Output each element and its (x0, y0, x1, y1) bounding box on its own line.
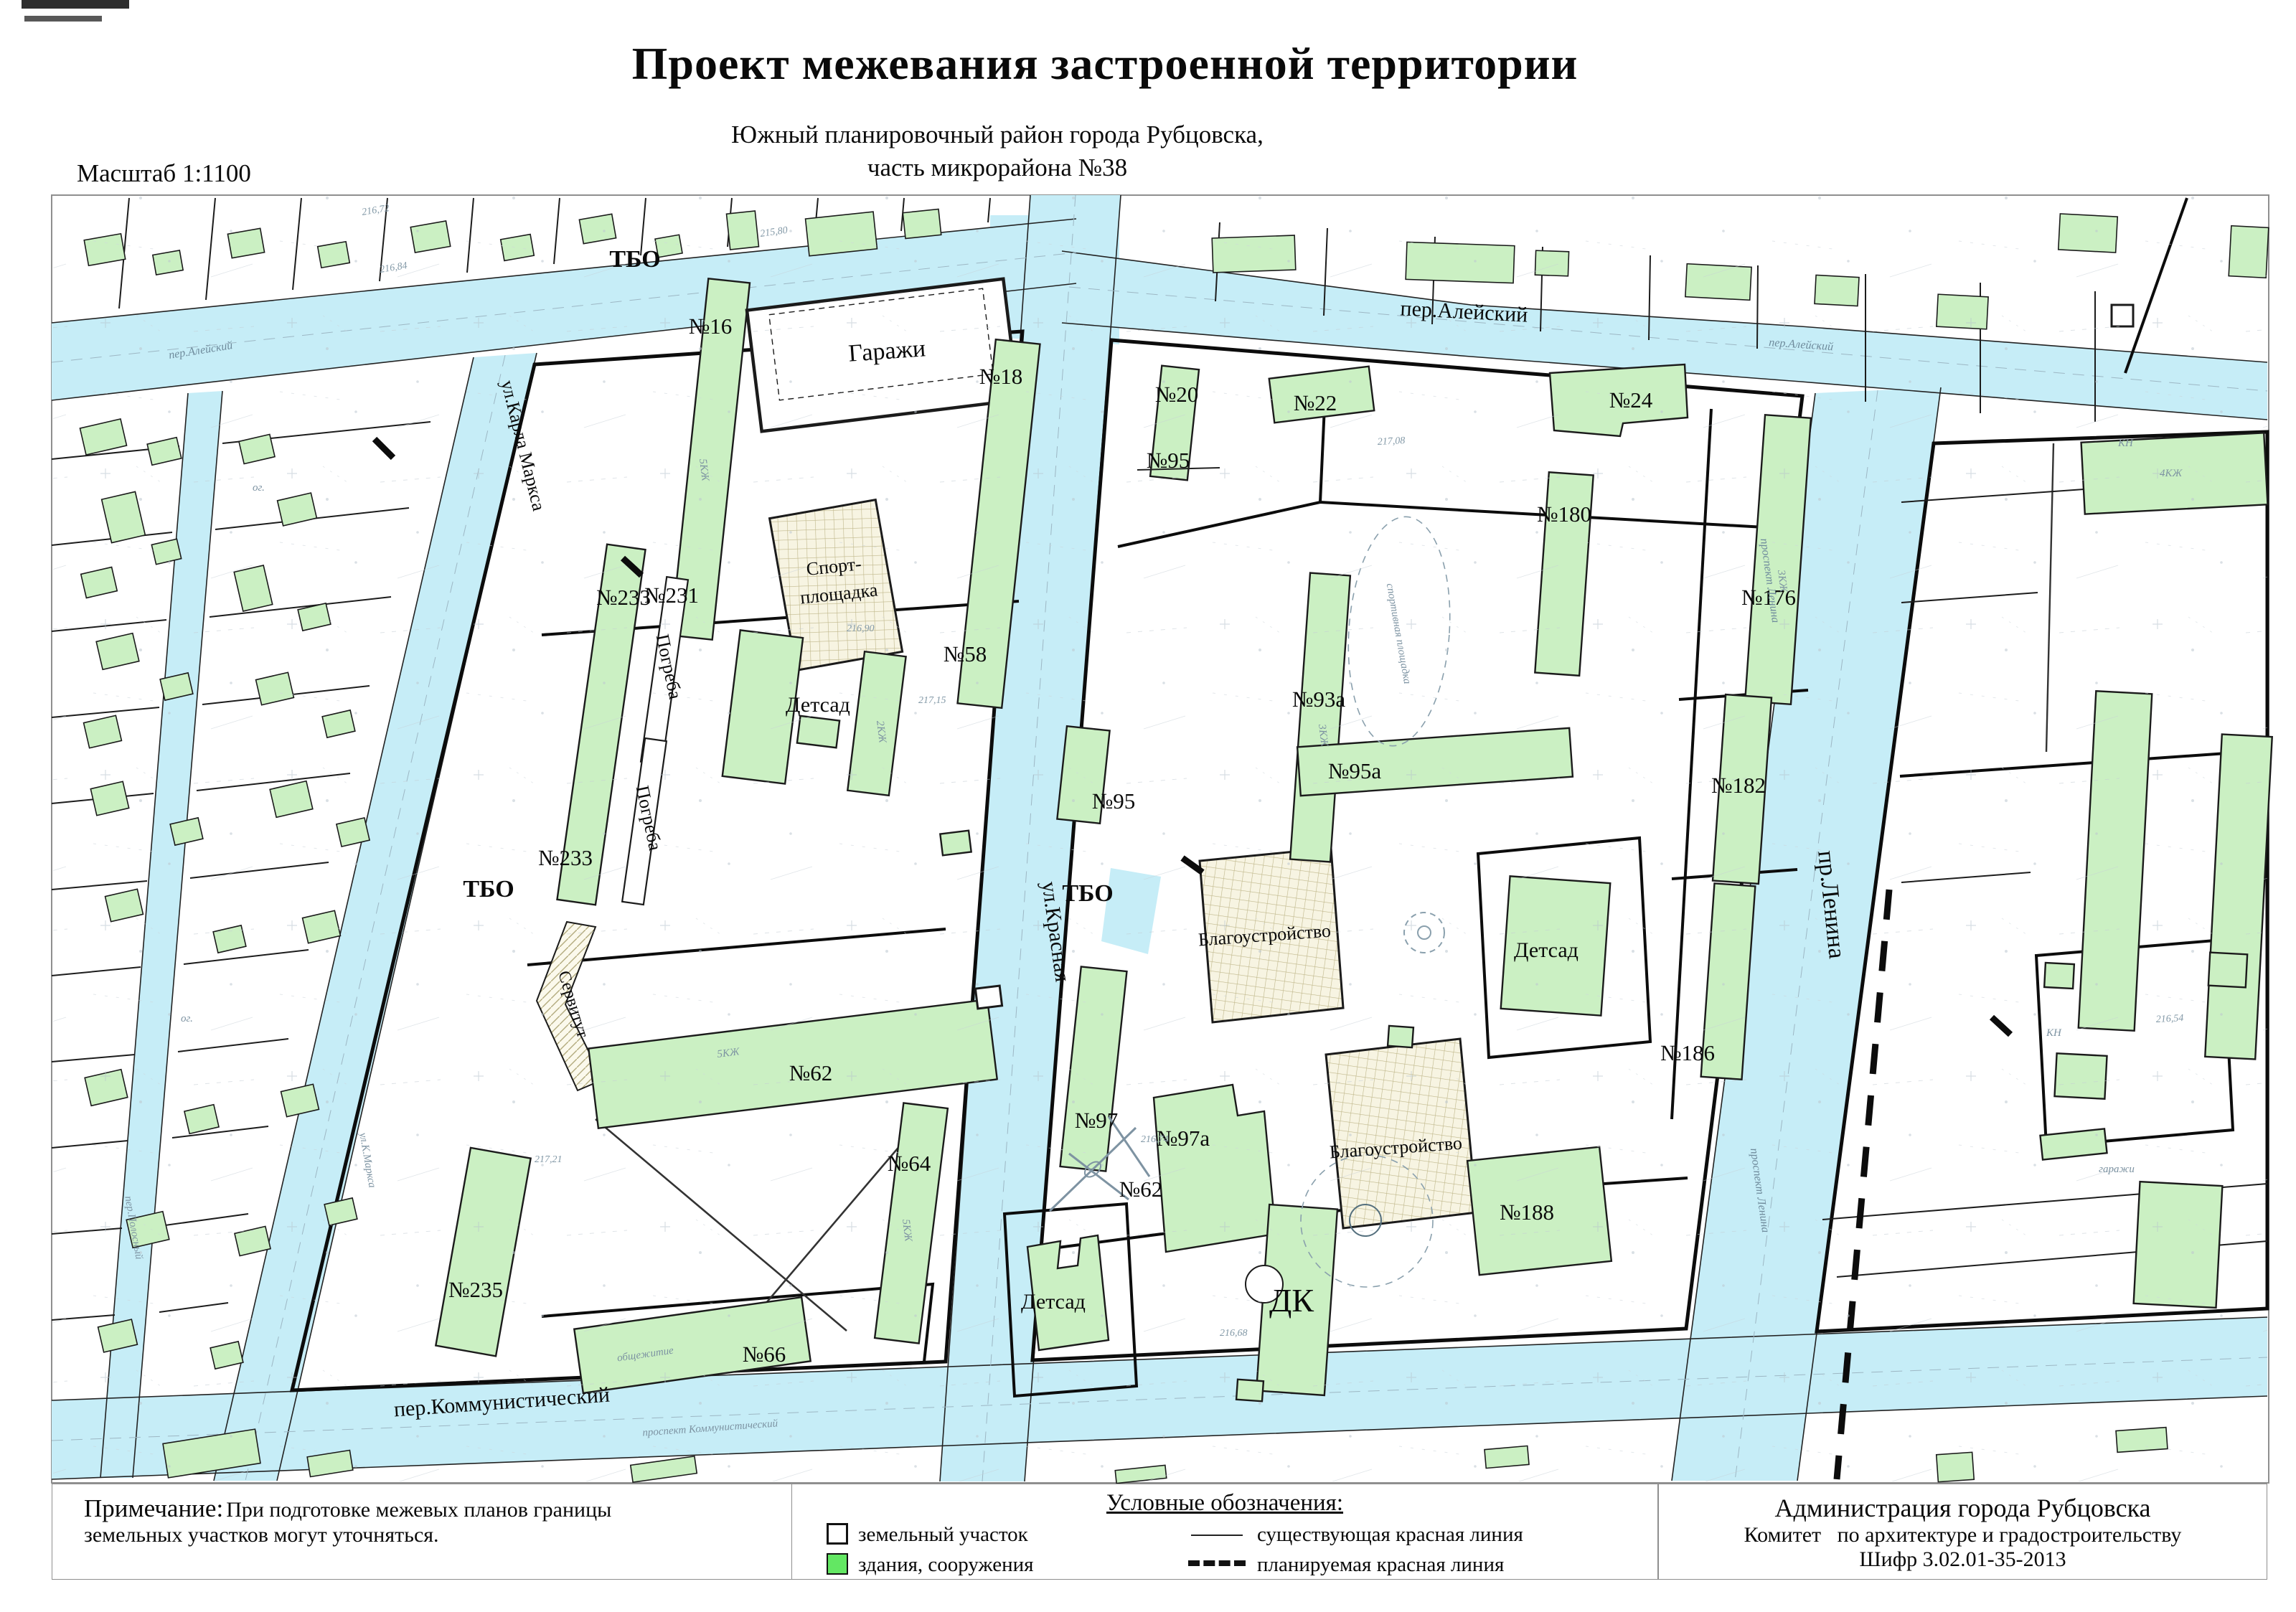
parcel-label-n233a: №233 (596, 585, 651, 610)
parcel-label-n62: №62 (789, 1060, 833, 1085)
kindergarten-label-2: Детсад (1514, 938, 1578, 962)
svg-text:217,21: 217,21 (535, 1154, 563, 1165)
parcel-label-n64: №64 (888, 1151, 931, 1176)
note-heading: Примечание: (84, 1494, 223, 1522)
parcel-label-n62b: №62 (1119, 1177, 1163, 1202)
hand-label-garages: гаражи (2099, 1164, 2135, 1175)
svg-text:216,68: 216,68 (1220, 1328, 1248, 1339)
parcel-label-n95b: №95 (1092, 788, 1136, 814)
parcel-label-n182: №182 (1711, 773, 1766, 798)
parcel-label-n66: №66 (743, 1342, 786, 1367)
parcel-label-n18: №18 (979, 364, 1023, 389)
legend-symbol-land-parcel (827, 1523, 848, 1545)
parcel-label-n188: №188 (1500, 1199, 1554, 1225)
parcel-label-n231: №231 (644, 583, 699, 608)
legend-label-planned-red-line: планируемая красная линия (1257, 1553, 1504, 1577)
garages-label: Гаражи (847, 335, 926, 367)
note-text-1: При подготовке межевых планов границы (226, 1498, 611, 1522)
tbo-label-2: ТБО (463, 876, 514, 902)
parcel-label-n95a-top: №95 (1147, 448, 1190, 473)
hand-label-og-1: ог. (253, 482, 265, 494)
parcel-label-n95a: №95а (1328, 758, 1382, 783)
admin-code: Шифр 3.02.01-35-2013 (1659, 1547, 2267, 1572)
hand-label-kn-2: КН (2046, 1027, 2062, 1039)
svg-text:217,15: 217,15 (918, 695, 946, 706)
parcel-label-n233b: №233 (538, 845, 593, 870)
legend-heading: Условные обозначения: (792, 1490, 1657, 1517)
legend-symbol-planned-red-line (1188, 1560, 1246, 1566)
admin-panel: Администрация города Рубцовска Комитет п… (1658, 1484, 2267, 1580)
parcel-label-n24: №24 (1609, 387, 1653, 413)
culture-house-label: ДК (1269, 1282, 1314, 1319)
kindergarten-label-1: Детсад (786, 693, 850, 717)
legend-symbol-existing-red-line (1191, 1535, 1243, 1536)
svg-text:216,90: 216,90 (847, 623, 875, 634)
legend-symbol-buildings (827, 1553, 848, 1575)
svg-text:216,74: 216,74 (1141, 1134, 1169, 1145)
hand-label-og-2: ог. (181, 1013, 193, 1024)
parcel-label-n93a: №93а (1292, 687, 1346, 712)
parcel-label-n20: №20 (1155, 382, 1199, 407)
kindergarten-label-3: Детсад (1021, 1290, 1086, 1314)
note-text-2: земельных участков могут уточняться. (84, 1523, 791, 1547)
parcel-label-n180: №180 (1537, 501, 1591, 527)
svg-text:217,08: 217,08 (1377, 435, 1405, 448)
legend-label-buildings: здания, сооружения (858, 1553, 1033, 1577)
parcel-label-n235: №235 (448, 1277, 503, 1302)
parcel-label-n22: №22 (1294, 390, 1337, 415)
hand-label-kzh4: 4КЖ (2160, 468, 2183, 479)
survey-map-page: Проект межевания застроенной территории … (0, 0, 2296, 1612)
parcel-label-n97: №97 (1075, 1108, 1119, 1133)
parcel-label-n186: №186 (1660, 1040, 1715, 1065)
note-panel: Примечание: При подготовке межевых плано… (52, 1484, 792, 1580)
svg-text:216,54: 216,54 (2155, 1013, 2183, 1025)
hand-label-kn-1: КН (2117, 438, 2134, 449)
legend-panel: Условные обозначения: земельный участок … (791, 1484, 1658, 1580)
legend-label-land-parcel: земельный участок (858, 1523, 1028, 1547)
admin-org: Администрация города Рубцовска (1659, 1493, 2267, 1523)
legend-label-existing-red-line: существующая красная линия (1257, 1523, 1523, 1547)
tbo-label-1: ТБО (609, 246, 660, 273)
map-canvas: пер.Алейский ул.Карла Маркса ул.Красная … (0, 0, 2296, 1612)
parcel-label-n58: №58 (944, 641, 987, 666)
parcel-label-n16: №16 (689, 314, 733, 339)
tbo-label-3: ТБО (1062, 880, 1113, 907)
admin-committee: Комитет по архитектуре и градостроительс… (1659, 1523, 2267, 1547)
